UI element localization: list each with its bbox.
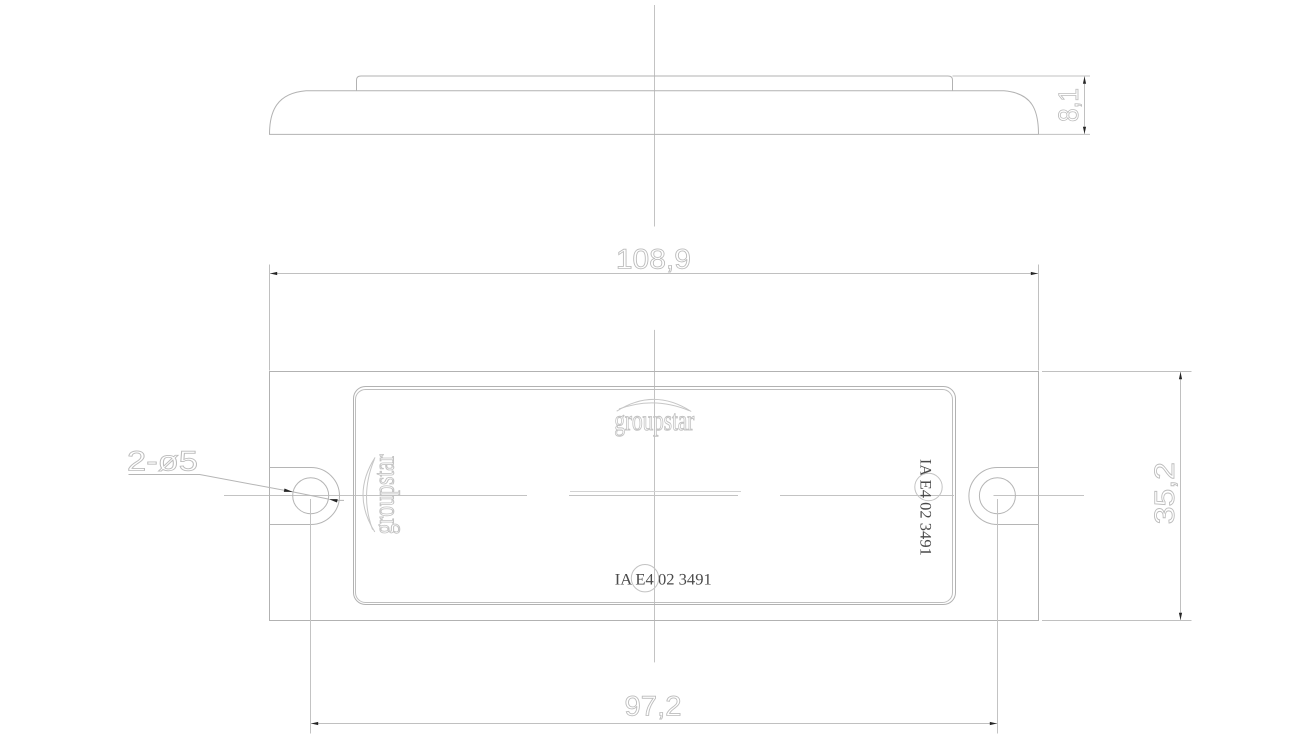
svg-text:groupstar: groupstar [614,405,694,437]
svg-text:groupstar: groupstar [369,454,401,534]
svg-text:97,2: 97,2 [625,691,682,722]
svg-text:IA E4 02 3491: IA E4 02 3491 [615,572,712,589]
svg-text:108,9: 108,9 [616,244,691,275]
svg-text:2-ø5: 2-ø5 [127,446,198,477]
svg-text:35,2: 35,2 [1149,462,1180,524]
svg-text:8,1: 8,1 [1053,88,1084,122]
